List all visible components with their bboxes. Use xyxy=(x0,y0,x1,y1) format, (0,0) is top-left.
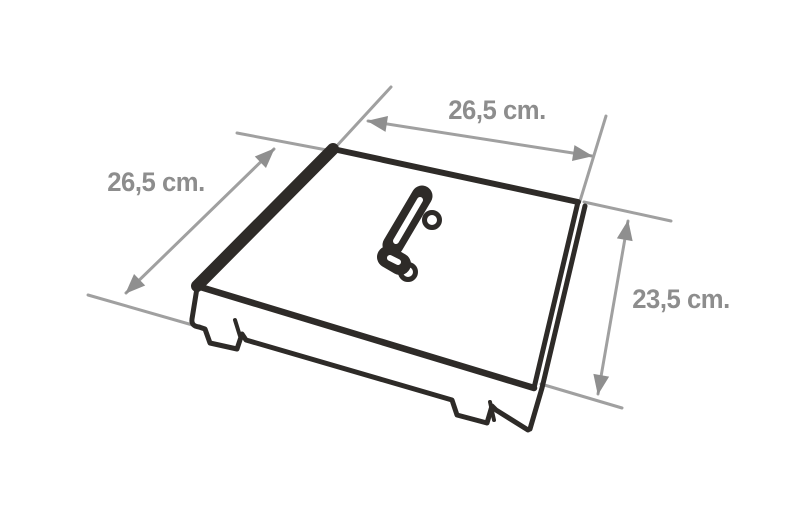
rim-left-edge xyxy=(192,288,199,327)
dimension-lines-group xyxy=(88,87,671,408)
handle-ear-ring xyxy=(425,213,440,228)
lid-right-edge-inner xyxy=(534,202,578,388)
dimension-arrow-top xyxy=(368,121,592,156)
dimension-label-left-depth: 26,5 cm. xyxy=(80,167,232,198)
rim-bottom-edge-with-tabs xyxy=(199,327,528,430)
dimension-label-top-width: 26,5 cm. xyxy=(421,95,573,126)
extension-line-right-top xyxy=(584,202,671,221)
lid-top-edge xyxy=(333,149,578,202)
extension-line-right-bottom xyxy=(541,384,622,408)
extension-line-top-left xyxy=(333,87,391,150)
extension-line-top-right xyxy=(580,116,606,201)
handle-foot-slot xyxy=(390,258,398,262)
extension-line-left-bottom xyxy=(88,295,196,326)
lid-technical-drawing xyxy=(0,0,800,508)
dimension-label-right-height: 23,5 cm. xyxy=(605,284,757,315)
rim-tab-left-hook xyxy=(235,320,240,336)
handle-foot-ring xyxy=(401,265,416,280)
lid-outline xyxy=(192,149,585,430)
lid-handle xyxy=(388,196,440,280)
extension-line-left-top xyxy=(237,133,332,151)
dimension-diagram: 26,5 cm. 26,5 cm. 23,5 cm. xyxy=(0,0,800,508)
